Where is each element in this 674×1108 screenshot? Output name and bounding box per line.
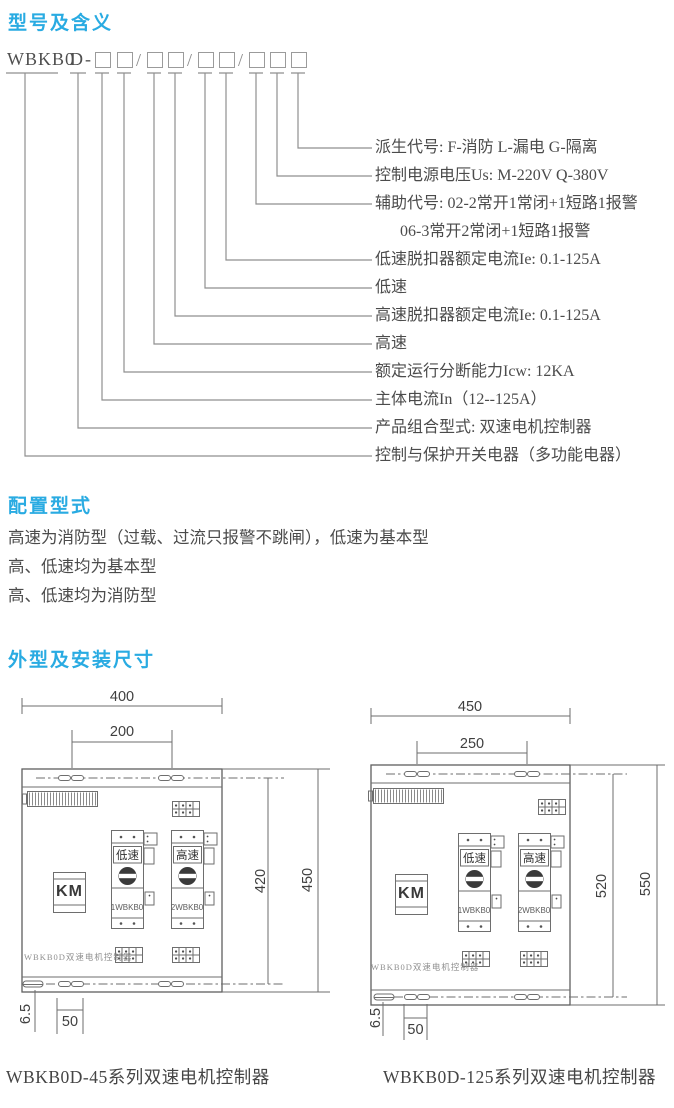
unit2-label: 2WBKB0: [516, 906, 552, 915]
dim-hole-offset: 50: [404, 1022, 427, 1038]
board-marking: WBKB0D双速电机控制器: [371, 961, 479, 973]
drawing-caption-45: WBKB0D-45系列双速电机控制器: [6, 1064, 270, 1089]
dim-slot-width: 6.5: [18, 992, 34, 1036]
unit1-label: 1WBKB0: [456, 906, 492, 915]
section-heading-outline: 外型及安装尺寸: [8, 645, 155, 672]
model-meaning-label: 辅助代号: 02-2常开1常闭+1短路1报警: [375, 194, 638, 214]
model-box: [95, 52, 111, 68]
dim-mount-height: 420: [253, 859, 269, 903]
model-meaning-label: 产品组合型式: 双速电机控制器: [375, 418, 591, 438]
model-meaning-label: 控制电源电压Us: M-220V Q-380V: [375, 166, 609, 186]
model-box: [147, 52, 163, 68]
dim-outer-height: 550: [638, 862, 654, 906]
model-box: [249, 52, 265, 68]
model-meaning-label: 高速: [375, 334, 407, 354]
dim-outer-width: 450: [448, 699, 492, 715]
unit1-label: 1WBKB0: [109, 903, 145, 912]
model-meaning-label: 高速脱扣器额定电流Ie: 0.1-125A: [375, 306, 601, 326]
model-box: [117, 52, 133, 68]
model-separator: /: [238, 50, 243, 71]
model-box: [198, 52, 214, 68]
model-box: [168, 52, 184, 68]
model-meaning-label: 额定运行分断能力Icw: 12KA: [375, 362, 575, 382]
section-heading-config: 配置型式: [8, 491, 92, 518]
model-code-dash: -: [85, 49, 92, 70]
module-label-high: 高速: [520, 852, 549, 866]
module-label-low: 低速: [460, 852, 489, 866]
dim-mount-height: 520: [594, 864, 610, 908]
outline-drawing-45: [22, 698, 330, 1034]
dim-mount-width: 250: [450, 736, 494, 752]
config-line: 高、低速均为基本型: [8, 553, 157, 577]
contactor-label: KM: [395, 882, 428, 906]
unit2-label: 2WBKB0: [169, 903, 205, 912]
model-box: [270, 52, 286, 68]
dim-hole-offset: 50: [57, 1014, 83, 1030]
model-code-type: D: [70, 49, 84, 70]
dim-outer-height: 450: [300, 858, 316, 902]
model-meaning-label: 低速: [375, 278, 407, 298]
contactor-label: KM: [53, 880, 86, 904]
config-line: 高、低速均为消防型: [8, 582, 157, 606]
drawing-caption-125: WBKB0D-125系列双速电机控制器: [383, 1064, 656, 1089]
dim-mount-width: 200: [100, 724, 144, 740]
model-meaning-label: 派生代号: F-消防 L-漏电 G-隔离: [375, 138, 598, 158]
model-separator: /: [187, 50, 192, 71]
config-line: 高速为消防型（过载、过流只报警不跳闸），低速为基本型: [8, 524, 429, 548]
model-meaning-label: 主体电流In（12--125A）: [375, 390, 547, 410]
model-tree: [6, 73, 372, 456]
model-meaning-label: 低速脱扣器额定电流Ie: 0.1-125A: [375, 250, 601, 270]
model-box: [291, 52, 307, 68]
model-meaning-label: 06-3常开2常闭+1短路1报警: [400, 222, 590, 242]
outline-drawing-125: [369, 708, 666, 1040]
catalog-page: 型号及含义 WBKB0 D - / / / 派生代号: F-消防 L-漏电 G-…: [0, 0, 674, 1108]
dim-outer-width: 400: [100, 689, 144, 705]
model-code-prefix: WBKB0: [7, 49, 75, 70]
model-box: [219, 52, 235, 68]
model-meaning-label: 控制与保护开关电器（多功能电器）: [375, 446, 631, 466]
section-heading-model: 型号及含义: [8, 8, 113, 35]
board-marking: WBKB0D双速电机控制器: [24, 951, 132, 963]
model-separator: /: [136, 50, 141, 71]
module-label-high: 高速: [173, 849, 202, 863]
module-label-low: 低速: [113, 849, 142, 863]
dim-slot-width: 6.5: [368, 996, 384, 1040]
